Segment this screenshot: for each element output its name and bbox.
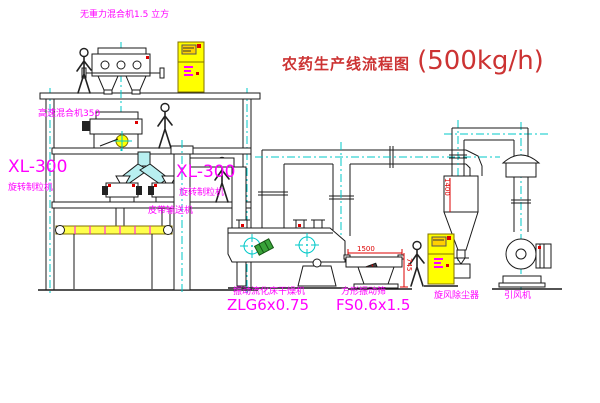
title-text: 农药生产线流程图	[282, 55, 410, 73]
fluid-bed-dryer-drawing	[228, 220, 348, 288]
label-fan: 引风机	[504, 291, 531, 301]
stack-rain-cap	[503, 155, 539, 177]
diagram-title: 农药生产线流程图 (500kg/h)	[282, 46, 544, 76]
label-gravity-mixer: 无重力混合机1.5 立方	[80, 10, 169, 20]
person-figure-roof	[77, 49, 91, 94]
belt-conveyor-drawing	[56, 208, 173, 289]
label-sieve-model: FS0.6x1.5	[336, 297, 410, 313]
label-granulator-left-model: XL-300	[8, 158, 67, 176]
label-belt-conveyor: 皮带输送机	[148, 206, 193, 216]
label-granulator-right-model: XL-300	[176, 163, 235, 181]
label-cyclone: 旋风除尘器	[434, 291, 479, 301]
induced-draft-fan-drawing	[492, 239, 562, 289]
label-granulator-right-name: 旋转制粒机	[179, 188, 224, 198]
dimension-sieve-height: 745	[405, 258, 413, 271]
cyclone-drawing	[444, 120, 548, 292]
dimension-sieve-length: 1500	[357, 245, 375, 253]
label-high-speed-mixer: 高速混合机350	[38, 109, 100, 119]
granulator-left-drawing	[102, 176, 142, 202]
control-cabinet-1	[178, 42, 204, 92]
vibrating-screen-drawing	[344, 249, 412, 289]
label-granulator-left-name: 旋转制粒机	[8, 183, 53, 193]
title-capacity: (500kg/h)	[417, 46, 544, 76]
label-dryer-model: ZLG6x0.75	[227, 297, 309, 313]
person-figure-floor2	[158, 104, 172, 149]
dimension-cyclone: 1400	[443, 178, 451, 196]
process-flow-diagram: 农药生产线流程图 (500kg/h) 无重力混合机1.5 立方 高速混合机350…	[0, 0, 600, 403]
control-cabinet-2	[424, 234, 458, 286]
